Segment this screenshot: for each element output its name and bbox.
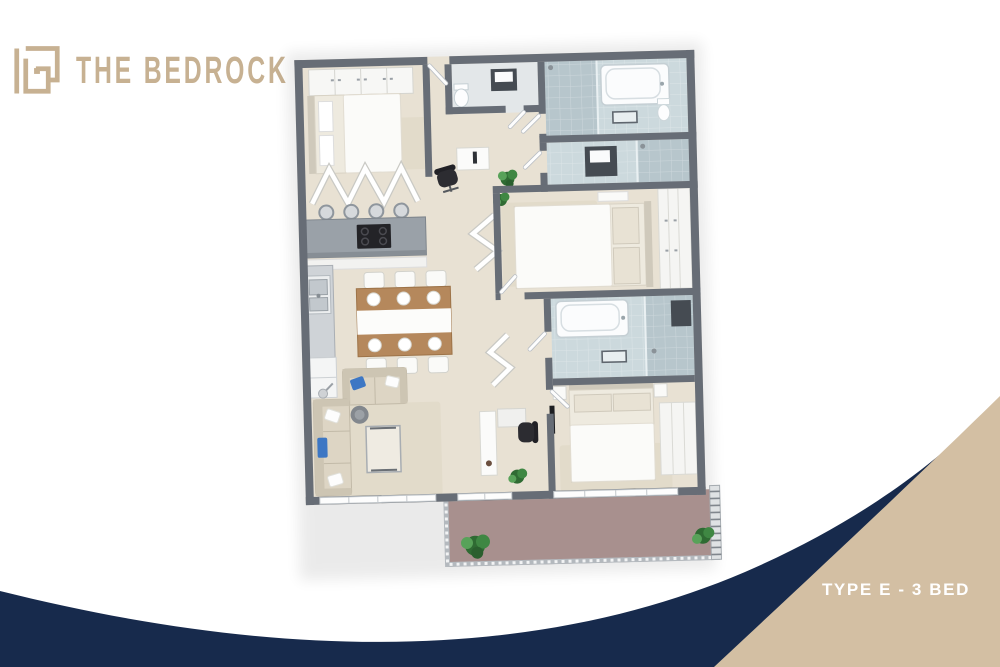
nightstand bbox=[654, 384, 667, 397]
bath-mat bbox=[613, 111, 637, 123]
pillow bbox=[613, 393, 650, 411]
cooktop bbox=[357, 224, 392, 249]
main-bathroom bbox=[544, 58, 688, 136]
bed bbox=[569, 382, 656, 482]
wardrobe-corridor bbox=[658, 188, 693, 289]
bed bbox=[307, 94, 402, 174]
dining-area bbox=[356, 270, 453, 374]
shower-glass bbox=[637, 140, 638, 182]
plan-type-label: TYPE E - 3 BED bbox=[822, 580, 970, 600]
wc-toilet bbox=[454, 89, 468, 107]
bed bbox=[514, 201, 653, 291]
dining-chairs-top bbox=[364, 270, 446, 288]
shower-cabinet bbox=[671, 300, 692, 327]
double-sink bbox=[306, 275, 331, 314]
sofa-vertical bbox=[313, 399, 352, 496]
bench bbox=[598, 192, 628, 202]
glass-coffee-table bbox=[366, 426, 401, 473]
toilet bbox=[658, 105, 670, 121]
bath-mat bbox=[602, 351, 626, 363]
monitor bbox=[473, 152, 477, 164]
floor-plan-render bbox=[0, 0, 1000, 667]
balcony-side-railing bbox=[710, 485, 722, 559]
pillow bbox=[319, 135, 334, 165]
blue-pillow bbox=[317, 438, 328, 458]
pillow bbox=[574, 394, 611, 412]
white-pillow bbox=[385, 375, 400, 388]
poster: THE BEDROCK bbox=[0, 0, 1000, 667]
pillow bbox=[613, 247, 640, 284]
office-chair bbox=[518, 421, 539, 444]
ensuite-shower-room bbox=[547, 139, 690, 185]
pillow bbox=[612, 207, 639, 244]
second-bathroom bbox=[551, 295, 695, 379]
pillow bbox=[318, 101, 333, 131]
wardrobe bbox=[659, 402, 697, 475]
sofa-horizontal bbox=[342, 367, 407, 405]
table-runner bbox=[357, 308, 452, 334]
